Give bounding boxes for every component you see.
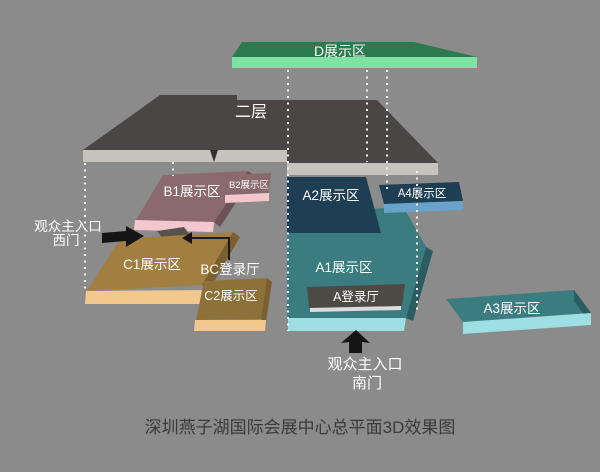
second-floor-label: 二层 — [235, 104, 267, 121]
a4-label: A4展示区 — [398, 187, 447, 200]
west-entrance-label-line2: 西门 — [53, 233, 80, 248]
c1-label: C1展示区 — [123, 257, 181, 272]
south-entrance-label-line2: 南门 — [352, 375, 382, 392]
area-a4-block: A4展示区 — [379, 182, 463, 213]
b1-label: B1展示区 — [163, 184, 220, 199]
c2-front-face — [194, 320, 266, 331]
south-entrance-annotation: 观众主入口 南门 — [327, 330, 402, 392]
second-floor-block: 二层 — [83, 95, 438, 175]
site-plan-3d-diagram: 二层 D展示区 B1展示区 B2展示区 C1展示区 C2展示区 — [0, 0, 600, 472]
site-plan-canvas: 二层 D展示区 B1展示区 B2展示区 C1展示区 C2展示区 — [0, 0, 600, 472]
bc-hall-label: BC登录厅 — [200, 262, 259, 277]
area-b2-block: B2展示区 — [225, 173, 271, 203]
south-entrance-arrow-icon — [341, 330, 370, 353]
a1-front-face — [288, 318, 406, 331]
west-entrance-label-line1: 观众主入口 — [34, 219, 102, 234]
diagram-caption: 深圳燕子湖国际会展中心总平面3D效果图 — [145, 418, 456, 437]
a2-top-face — [287, 177, 381, 233]
area-c2-block: C2展示区 — [194, 278, 272, 331]
area-a3-block: A3展示区 — [446, 290, 591, 334]
c2-label: C2展示区 — [204, 289, 257, 303]
second-floor-front-edge-right — [287, 163, 438, 175]
b2-label: B2展示区 — [229, 180, 270, 191]
area-a2-block: A2展示区 — [287, 177, 381, 233]
a1-label: A1展示区 — [315, 260, 372, 275]
west-entrance-annotation: 观众主入口 西门 — [34, 219, 144, 248]
a3-label: A3展示区 — [483, 301, 540, 316]
c1-front-face — [85, 290, 209, 304]
second-floor-front-edge-left — [83, 150, 287, 162]
a-hall-label: A登录厅 — [333, 289, 379, 304]
d-label: D展示区 — [314, 43, 366, 59]
a2-label: A2展示区 — [302, 188, 359, 203]
south-entrance-label-line1: 观众主入口 — [327, 356, 402, 373]
area-d-block: D展示区 — [232, 42, 477, 68]
